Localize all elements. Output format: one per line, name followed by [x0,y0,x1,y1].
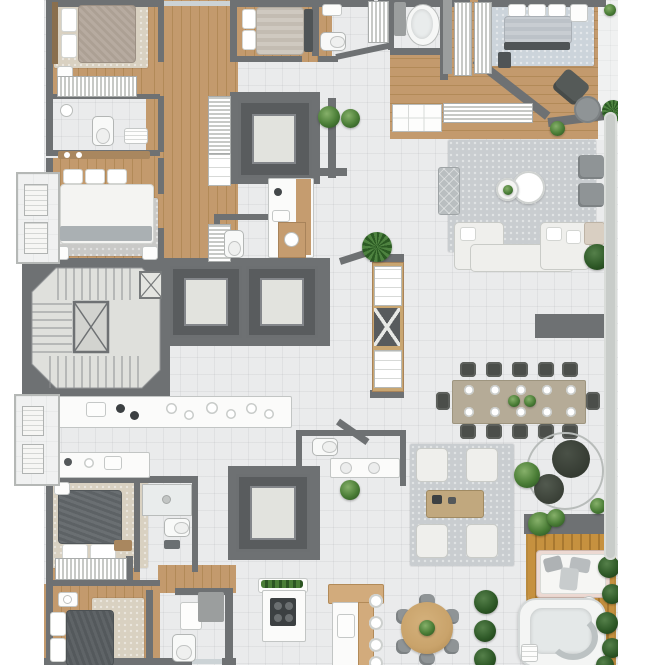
place-setting-b2 [490,407,500,417]
master-wardrobe-b [474,2,492,74]
kitchen-burner-b [130,411,139,420]
dining-chair-b1 [460,424,476,439]
kitchen-plate-f [264,409,274,419]
lounge-armchair-c [416,524,448,558]
wall-bottom-b [222,658,236,665]
bath3-sink-b [368,462,380,474]
bed5-lamp [63,595,72,604]
burner-1 [274,602,282,610]
master-ottoman [574,96,601,123]
bed3-bench [304,9,313,52]
floor-plan-canvas [0,0,665,665]
bed4-duvet [58,490,122,544]
place-setting-t4 [542,385,552,395]
dining-chair-t1 [460,362,476,377]
dining-plant-a [508,395,520,407]
bar-stool-2 [369,616,383,630]
deck-bush-b [547,509,565,527]
bath4-mat [164,540,180,549]
wall-bedroom45-divider [46,580,160,586]
lower-counter-item-b [84,458,94,468]
corridor-shoe-shelf [208,154,231,186]
nook-shelf-top [374,266,402,306]
bed2-pillow-c [107,169,127,184]
tv-half-wall [535,314,613,338]
bath3-sink-a [340,462,352,474]
wall-bath2-left [312,0,319,56]
elevator2-cab [184,278,228,326]
bar-island-wood-strip [358,602,374,665]
lounge-armchair-a [416,448,448,482]
egg-chair-cushion-a [552,440,590,478]
wall-bath4-left [134,476,140,572]
stairwell [22,258,170,398]
burner-2 [285,602,293,610]
master-tv-cabinet [498,52,511,68]
bath-center-sink [284,232,299,247]
bath3-bush [340,480,360,500]
kitchenette-tray [272,210,290,222]
terrace-railing [604,112,617,560]
burner-3 [274,614,282,622]
place-setting-b1 [464,407,474,417]
bedroom45-wardrobe [55,558,127,580]
wall-bath3-right [400,430,406,486]
place-setting-b4 [542,407,552,417]
walkin-dresser [392,104,442,132]
hall-bush-a [318,106,340,128]
bed5-duvet [66,610,114,665]
sofa-side-table [584,222,605,245]
bed1-headboard [52,2,58,64]
bed3-pillow-b [242,30,256,50]
elevator4-cab [250,486,296,540]
left-hedge-1 [474,590,498,614]
living-pouf [438,167,460,215]
balcony-b-ac-2 [22,444,44,474]
elevator3-cab [260,278,304,326]
bath4-drain [162,495,171,504]
egg-chair-bush-left [514,462,540,488]
dining-chair-end-right [586,392,600,410]
hot-tub-seat [548,614,598,660]
master-bathtub-inner [411,9,433,39]
bed2-pillow-a [63,169,83,184]
nook-shelf-bottom [374,350,402,388]
bath5-toilet [172,634,196,662]
bath1-floor-lamp [60,104,73,117]
wall-bedroom3-bottom-a [230,56,302,62]
bath1-toilet [92,116,114,146]
wall-bedroom2-right-b [158,228,164,262]
hall-console [58,151,150,159]
window-corridor-top [164,1,230,6]
left-hedge-3 [474,648,496,665]
bed5-pillow-b [50,638,66,662]
corridor-shelf-top [208,96,231,154]
bed1-duvet [78,5,136,63]
kitchen-burner-a [116,404,125,413]
master-bench [504,42,570,50]
bar-stool-3 [369,638,383,652]
hot-tub-steps [521,644,538,662]
master-closet-cabinet [443,0,452,74]
service-shaft [140,272,162,298]
living-armchair-b [578,183,604,207]
bed1-pillow-a [61,8,77,32]
nook-xbrace [374,308,400,346]
round-table-centerpiece [419,620,435,636]
kitchen-plate-c [206,402,218,414]
dining-chair-t3 [512,362,528,377]
master-bath-vanity [394,2,406,36]
master-duvet [504,16,572,44]
lower-counter-item-c [104,456,122,470]
coffee-table-plant [503,185,513,195]
bed2-throw [60,226,152,241]
kitchen-plate-d [226,409,236,419]
hall-bush-b [341,109,360,128]
living-sideboard [443,103,533,123]
master-wardrobe-a [454,2,472,76]
wall-bath4-right [192,476,198,572]
place-setting-t5 [566,385,576,395]
island-planter-greens [261,580,303,588]
dining-chair-t4 [538,362,554,377]
outside-white-right [618,0,665,665]
wall-bath5-left [146,590,153,665]
bath2-closet [368,1,389,43]
bath4-toilet [164,518,190,537]
dining-chair-t2 [486,362,502,377]
sofa-pillow-a [460,227,476,241]
place-setting-t2 [490,385,500,395]
sofa-pillow-c [566,230,581,244]
bed3-pillow-a [242,9,256,29]
left-hedge-2 [474,620,496,642]
bedroom1-wardrobe [57,76,137,97]
console-bowl-a [64,152,70,158]
lounge-table-decor-a [432,495,442,504]
bar-sink [337,614,355,638]
bath5-cabinet [198,592,224,622]
lounge-armchair-d [466,524,498,558]
dining-chair-end-left [436,392,450,410]
daybed-throw [559,567,579,591]
dining-plant-b [524,395,536,407]
burner-4 [285,614,293,622]
stair-void [74,302,108,352]
wall-bedroom1-right-b [158,96,164,152]
bar-stool-4 [369,656,383,665]
wall-bath5-right [225,590,233,665]
lounge-table-decor-b [448,497,456,504]
bed3-duvet [256,7,304,55]
bath-center-toilet [224,230,244,258]
balcony-a-ac-2 [24,222,48,254]
place-setting-t3 [516,385,526,395]
balcony-b-ac-1 [22,406,44,436]
living-armchair-a [578,155,604,179]
dining-chair-b3 [512,424,528,439]
balcony-a-ac-1 [24,184,48,216]
master-nightstand [570,4,588,22]
kitchenette-kettle [274,188,282,196]
wall-bedroom2-right-a [158,158,164,194]
lounge-armchair-b [466,448,498,482]
island-cooktop [270,598,296,626]
bed2-pillow-b [85,169,105,184]
console-bowl-b [76,152,82,158]
bath1-towels [124,128,148,144]
bed4-bench [114,540,132,551]
right-hedge-3 [596,612,618,634]
bed2-nightstand-right [142,246,158,260]
dining-chair-t5 [562,362,578,377]
wall-bedroom1-right-a [158,0,164,62]
bath3-toilet [312,438,338,456]
wall-bedroom3-left [230,0,237,62]
bed1-pillow-b [61,34,77,58]
hall-palm [362,232,392,262]
kitchen-plate-b [184,410,194,420]
bath2-toilet [320,32,346,51]
place-setting-b3 [516,407,526,417]
window-bottom [192,659,222,664]
place-setting-b5 [566,407,576,417]
lower-counter-item-a [64,458,72,466]
bar-stool-1 [369,594,383,608]
kitchen-sink [86,402,106,417]
bed5-pillow-a [50,612,66,636]
kitchen-plate-a [166,403,177,414]
place-setting-t1 [464,385,474,395]
bath2-sink [322,4,342,16]
half-wall-plant [550,121,565,136]
terrace-plant-corner [604,4,616,16]
sofa-pillow-b [546,227,562,241]
kitchen-plate-e [246,403,257,414]
dining-chair-b2 [486,424,502,439]
wall-top-bedroom3 [234,0,374,7]
wall-master-bath-bottom [390,48,448,55]
elevator1-cab [252,114,296,164]
